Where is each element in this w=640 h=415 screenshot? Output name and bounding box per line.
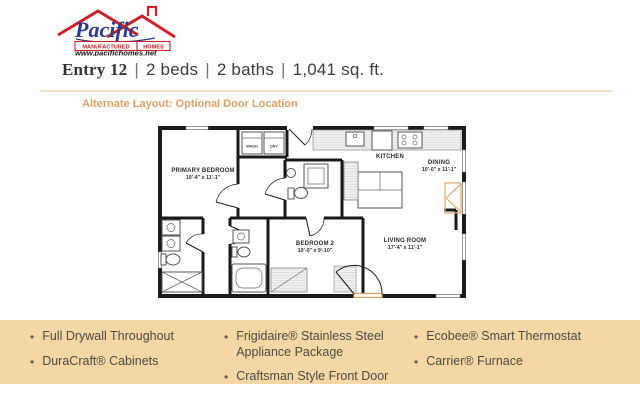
feature-item: •Carrier® Furnace bbox=[414, 354, 624, 370]
exterior-walls bbox=[160, 128, 464, 296]
primary-bedroom-dims: 10'-4" x 11'-1" bbox=[186, 175, 221, 181]
bullet-icon: • bbox=[224, 329, 228, 345]
floor-plan: WASH DRY bbox=[158, 126, 466, 303]
feature-text: Carrier® Furnace bbox=[426, 354, 523, 370]
feature-item: •Frigidaire® Stainless Steel Appliance P… bbox=[224, 329, 406, 360]
logo-brand: Pacific bbox=[74, 17, 139, 42]
beds-spec: 2 beds bbox=[146, 60, 198, 79]
bedroom2-dims: 10'-0" x 9'-10" bbox=[298, 248, 333, 254]
living-room-label: LIVING ROOM bbox=[384, 238, 427, 244]
washer-label: WASH bbox=[246, 145, 258, 149]
dining-label: DINING bbox=[428, 160, 450, 166]
title-separator-2: | bbox=[198, 60, 217, 79]
bullet-icon: • bbox=[414, 329, 418, 345]
feature-text: Craftsman Style Front Door bbox=[236, 369, 388, 385]
bedroom2-closet bbox=[271, 268, 307, 292]
feature-text: Full Drywall Throughout bbox=[42, 329, 174, 345]
bedroom2-label: BEDROOM 2 bbox=[296, 241, 335, 247]
bullet-icon: • bbox=[30, 354, 34, 370]
features-column-1: •Full Drywall Throughout •DuraCraft® Cab… bbox=[30, 329, 210, 379]
bath-2 bbox=[232, 230, 266, 292]
pantry-cabinet bbox=[344, 162, 358, 200]
windows bbox=[159, 127, 466, 298]
company-logo[interactable]: Pacific MANUFACTURED HOMES www.pacificho… bbox=[52, 4, 187, 56]
model-name: Entry 12 bbox=[62, 60, 127, 79]
optional-door-living bbox=[334, 265, 382, 297]
title-separator-3: | bbox=[274, 60, 293, 79]
feature-item: •Craftsman Style Front Door bbox=[224, 369, 406, 385]
kitchen-counters bbox=[313, 130, 461, 150]
primary-bedroom-label: PRIMARY BEDROOM bbox=[171, 168, 234, 174]
feature-text: DuraCraft® Cabinets bbox=[42, 354, 158, 370]
sqft-spec: 1,041 sq. ft. bbox=[293, 60, 384, 79]
house-logo-icon: Pacific MANUFACTURED HOMES www.pacificho… bbox=[52, 4, 187, 56]
alternate-layout-note: Alternate Layout: Optional Door Location bbox=[82, 98, 298, 110]
bullet-icon: • bbox=[30, 329, 34, 345]
feature-item: •Full Drywall Throughout bbox=[30, 329, 210, 345]
interior-walls bbox=[160, 128, 456, 294]
primary-bath bbox=[161, 220, 202, 292]
laundry-closet: WASH DRY bbox=[242, 132, 284, 154]
baths-spec: 2 baths bbox=[217, 60, 274, 79]
bullet-icon: • bbox=[414, 354, 418, 370]
features-column-3: •Ecobee® Smart Thermostat •Carrier® Furn… bbox=[414, 329, 624, 379]
title-separator-1: | bbox=[127, 60, 146, 79]
living-room-dims: 17'-4" x 11'-1" bbox=[388, 245, 423, 251]
kitchen-label: KITCHEN bbox=[376, 154, 404, 160]
feature-item: •DuraCraft® Cabinets bbox=[30, 354, 210, 370]
dryer-label: DRY bbox=[270, 145, 278, 149]
feature-text: Frigidaire® Stainless Steel Appliance Pa… bbox=[236, 329, 406, 360]
features-band: •Full Drywall Throughout •DuraCraft® Cab… bbox=[0, 320, 640, 384]
dining-dims: 10'-0" x 11'-1" bbox=[422, 167, 457, 173]
features-column-2: •Frigidaire® Stainless Steel Appliance P… bbox=[224, 329, 406, 394]
feature-text: Ecobee® Smart Thermostat bbox=[426, 329, 581, 345]
page-title: Entry 12|2 beds|2 baths|1,041 sq. ft. bbox=[62, 60, 384, 80]
bullet-icon: • bbox=[224, 369, 228, 385]
logo-website: www.pacifichomes.net bbox=[75, 49, 157, 57]
header-divider bbox=[40, 90, 612, 92]
feature-item: •Ecobee® Smart Thermostat bbox=[414, 329, 624, 345]
hall-bath bbox=[287, 164, 329, 199]
